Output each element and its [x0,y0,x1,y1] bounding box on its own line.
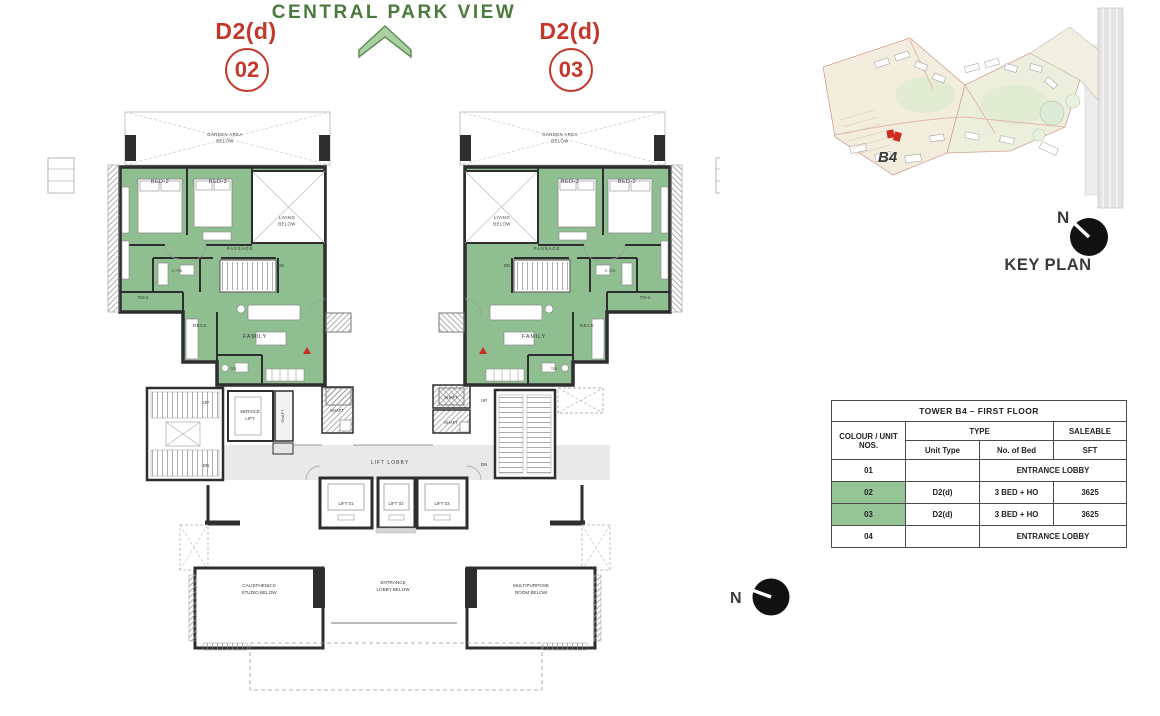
label-passage-left: PASSAGE [227,246,254,251]
table-row-01: 01 ENTRANCE LOBBY [832,460,1127,482]
label-bed3-right: BED-3 [561,179,579,185]
col-header-bed: No. of Bed [980,441,1054,460]
cell-unit-04: 04 [832,526,906,548]
label-dn-left: DN [203,463,210,468]
north-label-keyplan: N [1057,208,1069,227]
label-dn-right: DN [481,462,488,467]
cell-type-04 [906,526,980,548]
table-row-02: 02 D2(d) 3 BED + HO 3625 [832,482,1127,504]
label-living-right-1: LIVING [494,215,511,220]
label-garden-right-2: BELOW [551,139,569,144]
label-deck-left: DECK [193,323,208,328]
unit-number-badge-right: 03 [549,48,593,92]
core-shapes [147,385,610,533]
cell-type-01 [906,460,980,482]
label-bed2-left: BED-2 [151,179,169,185]
unit-number-badge-left: 02 [225,48,269,92]
label-family-right: FAMILY [522,334,546,340]
key-plan-map: B4 [823,8,1123,208]
label-shaft-4: SHAFT [444,420,458,425]
label-deck-right: DECK [580,323,595,328]
cell-value-04: ENTRANCE LOBBY [980,526,1127,548]
label-living-right-2: BELOW [493,222,511,227]
label-living-left-2: BELOW [278,222,296,227]
cell-sft-02: 3625 [1054,482,1127,504]
label-toi2-left: TOI-2 [138,295,149,300]
label-calisthenics-1: CALISTHENICS [242,583,275,588]
label-garden-right-1: GARDEN AREA [542,132,577,137]
label-multipurpose-2: ROOM BELOW [515,590,548,595]
label-bed2-right: BED-2 [618,179,636,185]
cell-unit-01: 01 [832,460,906,482]
cell-unit-02: 02 [832,482,906,504]
label-lift-03: LIFT 03 [434,501,450,506]
label-ctoi-left: C.TOI [172,268,183,273]
north-label-plan: N [730,590,742,607]
cell-unit-03: 03 [832,504,906,526]
label-calisthenics-2: STUDIO BELOW [241,590,277,595]
key-plan: B4 N KEY PLAN [815,5,1130,280]
col-header-sft: SFT [1054,441,1127,460]
table-row-03: 03 D2(d) 3 BED + HO 3625 [832,504,1127,526]
label-shaft-1: SHAFT [280,409,285,423]
label-family-left: FAMILY [243,334,267,340]
label-lift-02: LIFT 02 [388,501,404,506]
plan-compass: N [718,572,803,622]
label-lift-01: LIFT 01 [338,501,354,506]
label-garden-left-2: BELOW [216,139,234,144]
col-header-unit-type: Unit Type [906,441,980,460]
label-dn-unit-right: DN [504,263,510,268]
label-multipurpose-1: MULTIPURPOSE [513,583,549,588]
label-garden-left-1: GARDEN AREA [207,132,242,137]
floor-plan: GARDEN AREA BELOW BED-2 BED-3 LIVING BEL… [40,95,720,715]
label-living-left-1: LIVING [279,215,296,220]
key-plan-caption: KEY PLAN [1004,256,1091,274]
key-plan-compass: N [1057,208,1108,256]
col-header-saleable: SALEABLE [1054,422,1127,441]
label-lift-lobby: LIFT LOBBY [371,460,409,466]
label-toi-left: TOI [230,366,237,371]
col-header-type: TYPE [906,422,1054,441]
cell-bed-03: 3 BED + HO [980,504,1054,526]
label-service-2: LIFT [245,416,255,421]
unit-table: TOWER B4 – FIRST FLOOR COLOUR / UNIT NOS… [831,400,1127,548]
table-row-04: 04 ENTRANCE LOBBY [832,526,1127,548]
label-bed3-left: BED-3 [209,179,227,185]
label-entrance-1: ENTRANCE [380,580,405,585]
label-passage-right: PASSAGE [534,246,561,251]
unit-03-shapes [439,112,720,405]
label-up-right: UP [481,398,487,403]
park-direction-arrow-icon [350,24,420,60]
cell-type-03: D2(d) [906,504,980,526]
multipurpose-room [467,568,595,648]
unit-type-label-left: D2(d) [196,18,296,45]
label-dn-unit-left: DN [278,263,284,268]
label-entrance-2: LOBBY BELOW [376,587,410,592]
col-header-unit: COLOUR / UNIT NOS. [832,422,906,460]
label-toi-right: TOI [551,366,558,371]
b4-label: B4 [878,149,898,166]
label-service-1: SERVICE [240,409,260,414]
label-up-left: UP [203,400,209,405]
cell-bed-02: 3 BED + HO [980,482,1054,504]
unit-type-label-right: D2(d) [520,18,620,45]
calisthenics-room [195,568,323,648]
label-shaft-3: SHAFT [444,395,458,400]
label-shaft-2: SHAFT [330,408,344,413]
unit-02-shapes [48,112,351,405]
label-ctoi-right: C.TOI [605,268,616,273]
label-toi2-right: TOI-2 [640,295,651,300]
cell-type-02: D2(d) [906,482,980,504]
cell-value-01: ENTRANCE LOBBY [980,460,1127,482]
cell-sft-03: 3625 [1054,504,1127,526]
table-title: TOWER B4 – FIRST FLOOR [832,401,1127,422]
